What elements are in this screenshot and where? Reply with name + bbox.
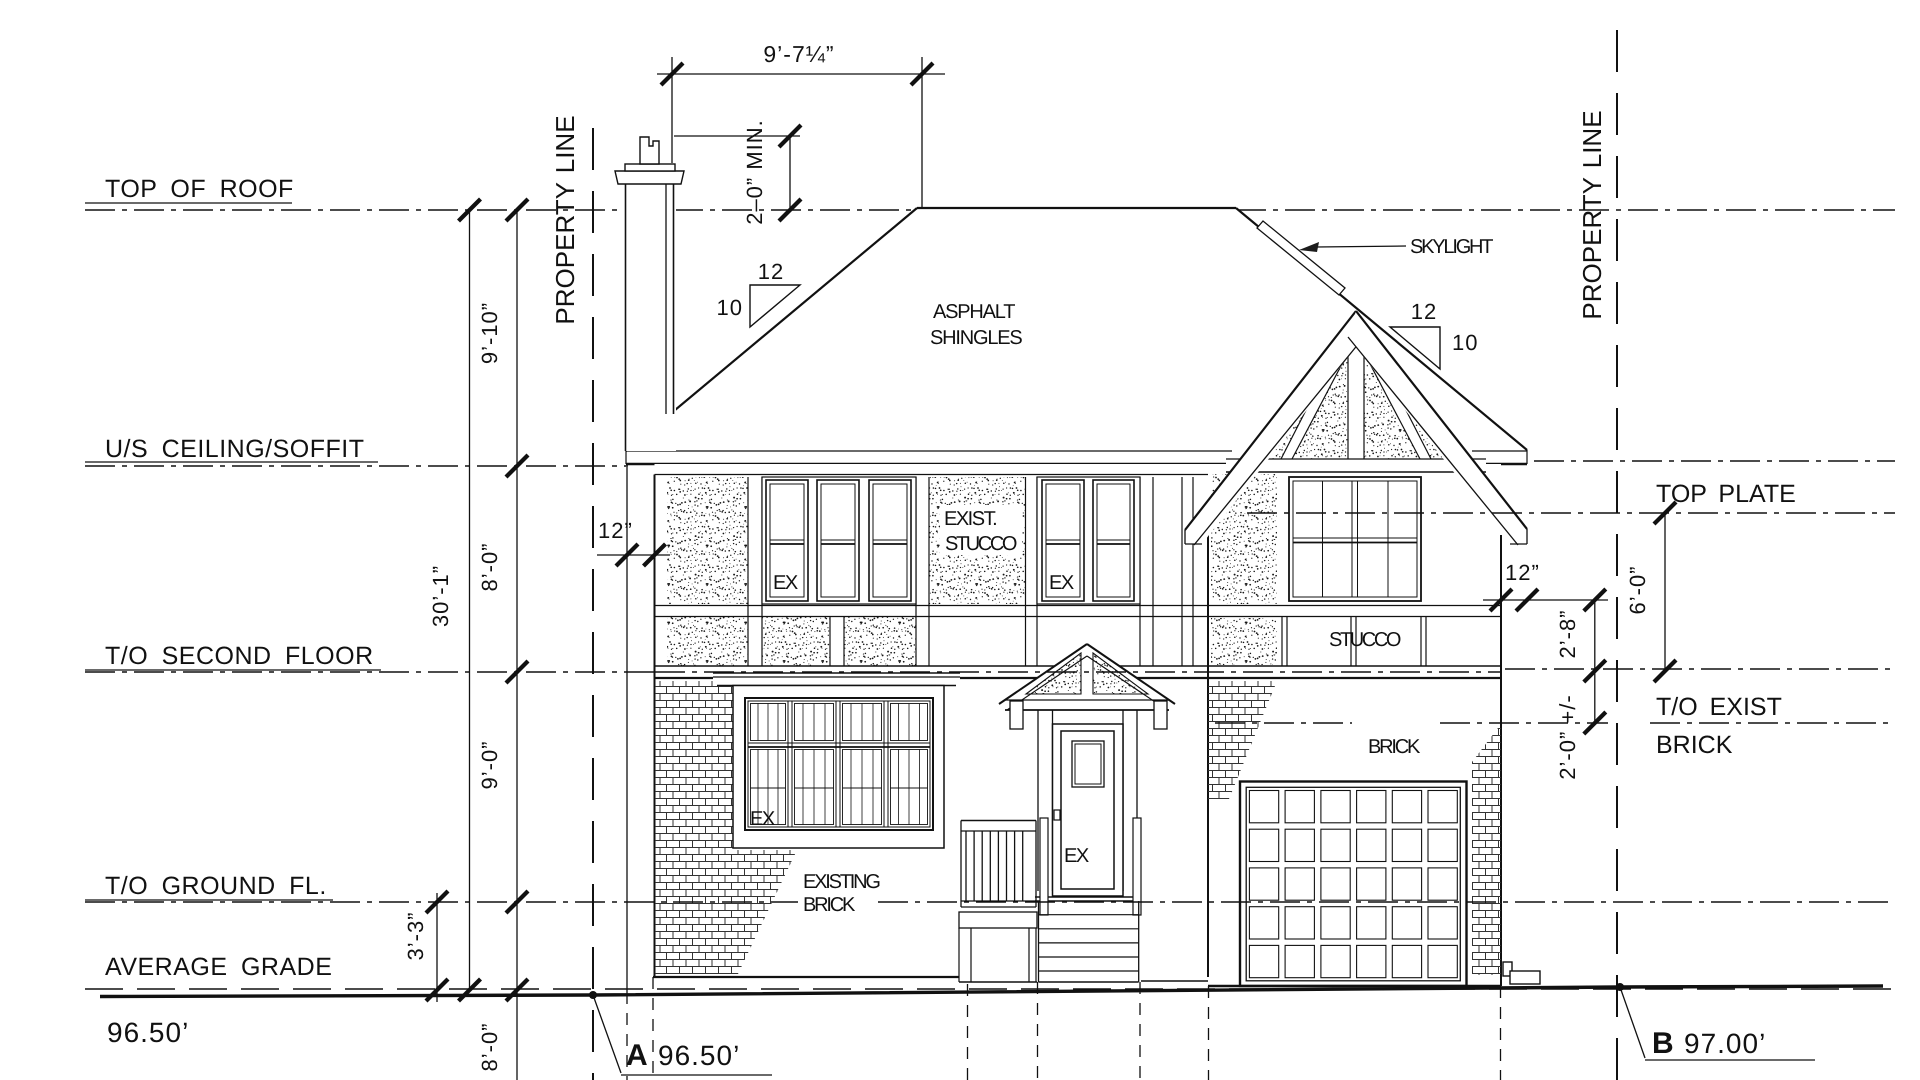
svg-text:AVERAGE GRADE: AVERAGE GRADE — [105, 953, 332, 981]
svg-text:8’-0”: 8’-0” — [477, 542, 502, 591]
svg-text:9’-10”: 9’-10” — [477, 302, 502, 364]
svg-text:30’-1”: 30’-1” — [428, 565, 453, 627]
svg-text:SHINGLES: SHINGLES — [930, 327, 1022, 349]
svg-text:TOP OF ROOF: TOP OF ROOF — [105, 175, 294, 203]
svg-text:BRICK: BRICK — [1656, 731, 1733, 759]
svg-text:96.50’: 96.50’ — [658, 1040, 740, 1071]
svg-text:EXIST.: EXIST. — [944, 508, 996, 530]
svg-text:EX: EX — [1049, 572, 1074, 594]
svg-text:96.50’: 96.50’ — [107, 1017, 189, 1048]
svg-text:10: 10 — [1452, 330, 1478, 355]
svg-text:BRICK: BRICK — [1368, 736, 1421, 758]
svg-text:3’-3”: 3’-3” — [403, 911, 428, 960]
svg-text:12: 12 — [1411, 299, 1437, 324]
svg-text:BRICK: BRICK — [803, 894, 856, 916]
svg-text:2–0” MIN.: 2–0” MIN. — [742, 119, 767, 225]
svg-text:9’-0”: 9’-0” — [477, 740, 502, 789]
svg-text:ASPHALT: ASPHALT — [933, 301, 1015, 323]
svg-text:A: A — [626, 1039, 648, 1072]
svg-text:2’-0” +/-: 2’-0” +/- — [1555, 694, 1580, 779]
svg-text:B: B — [1652, 1027, 1674, 1060]
svg-text:2’-8”: 2’-8” — [1555, 609, 1580, 658]
svg-text:EX: EX — [773, 572, 798, 594]
svg-text:PROPERTY LINE: PROPERTY LINE — [1577, 110, 1607, 319]
svg-text:EXISTING: EXISTING — [803, 871, 880, 893]
svg-text:12”: 12” — [1505, 560, 1540, 585]
svg-text:STUCCO: STUCCO — [945, 533, 1017, 555]
svg-text:12: 12 — [758, 259, 784, 284]
svg-text:12”: 12” — [598, 518, 633, 543]
svg-text:EX: EX — [1064, 845, 1089, 867]
svg-text:PROPERTY LINE: PROPERTY LINE — [550, 115, 580, 324]
svg-text:T/O SECOND FLOOR: T/O SECOND FLOOR — [105, 642, 374, 670]
svg-text:EX: EX — [750, 808, 775, 830]
svg-text:97.00’: 97.00’ — [1684, 1028, 1766, 1059]
svg-text:T/O EXIST: T/O EXIST — [1656, 693, 1782, 721]
svg-text:9’-7¼”: 9’-7¼” — [763, 41, 834, 67]
svg-text:STUCCO: STUCCO — [1329, 629, 1401, 651]
svg-text:SKYLIGHT: SKYLIGHT — [1410, 236, 1493, 258]
svg-text:6’-0”: 6’-0” — [1625, 565, 1650, 614]
svg-text:U/S CEILING/SOFFIT: U/S CEILING/SOFFIT — [105, 435, 364, 463]
svg-text:T/O GROUND FL.: T/O GROUND FL. — [105, 872, 327, 900]
svg-text:8’-0”: 8’-0” — [477, 1022, 502, 1071]
svg-text:10: 10 — [717, 295, 743, 320]
